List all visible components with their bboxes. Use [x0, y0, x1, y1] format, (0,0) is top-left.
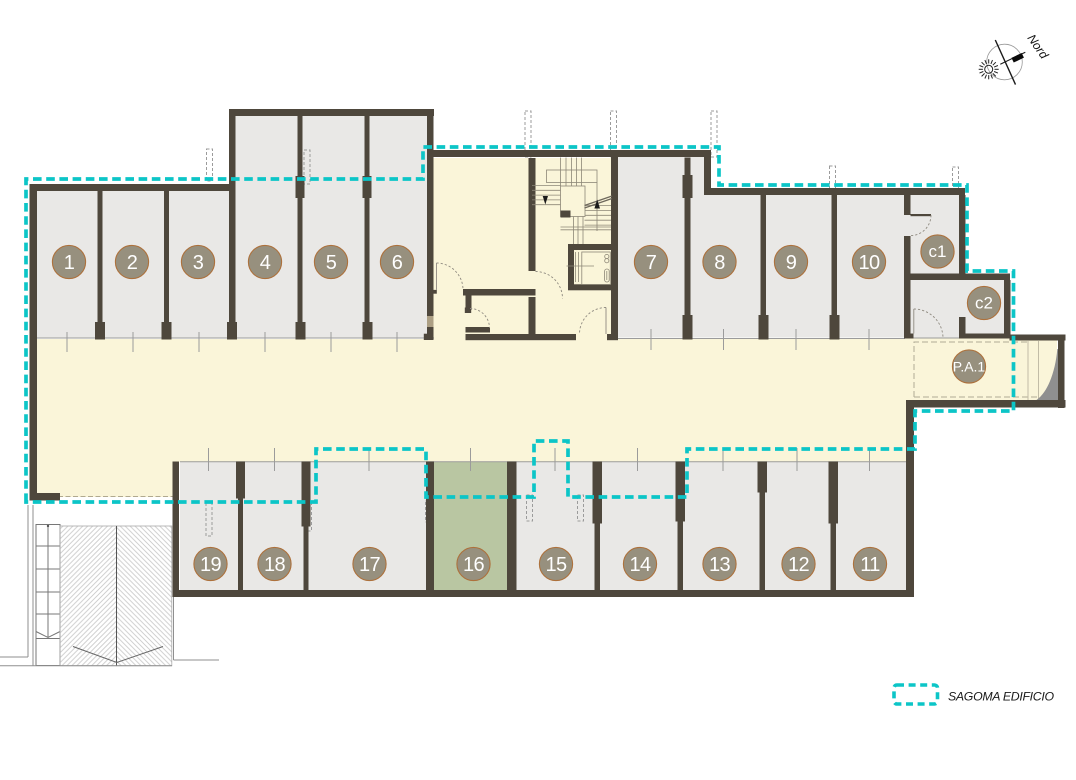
svg-text:14: 14: [629, 554, 651, 576]
svg-text:3: 3: [193, 252, 204, 274]
svg-text:18: 18: [264, 554, 286, 576]
svg-text:5: 5: [326, 252, 337, 274]
svg-text:13: 13: [709, 554, 731, 576]
svg-text:2: 2: [127, 252, 138, 274]
svg-text:17: 17: [359, 554, 381, 576]
svg-text:10: 10: [858, 252, 880, 274]
svg-text:c1: c1: [929, 242, 947, 261]
svg-text:7: 7: [646, 252, 657, 274]
svg-text:8: 8: [714, 252, 725, 274]
svg-text:19: 19: [200, 554, 222, 576]
svg-text:6: 6: [392, 252, 403, 274]
svg-text:12: 12: [788, 554, 810, 576]
svg-text:P.A.1: P.A.1: [953, 359, 986, 375]
svg-text:Nord: Nord: [1025, 32, 1052, 63]
svg-text:4: 4: [260, 252, 271, 274]
svg-text:1: 1: [64, 252, 75, 274]
svg-text:16: 16: [463, 554, 485, 576]
svg-text:SAGOMA EDIFICIO: SAGOMA EDIFICIO: [948, 690, 1054, 704]
svg-text:11: 11: [860, 554, 880, 576]
svg-text:c2: c2: [975, 294, 993, 313]
svg-text:9: 9: [786, 252, 797, 274]
svg-text:15: 15: [545, 554, 567, 576]
